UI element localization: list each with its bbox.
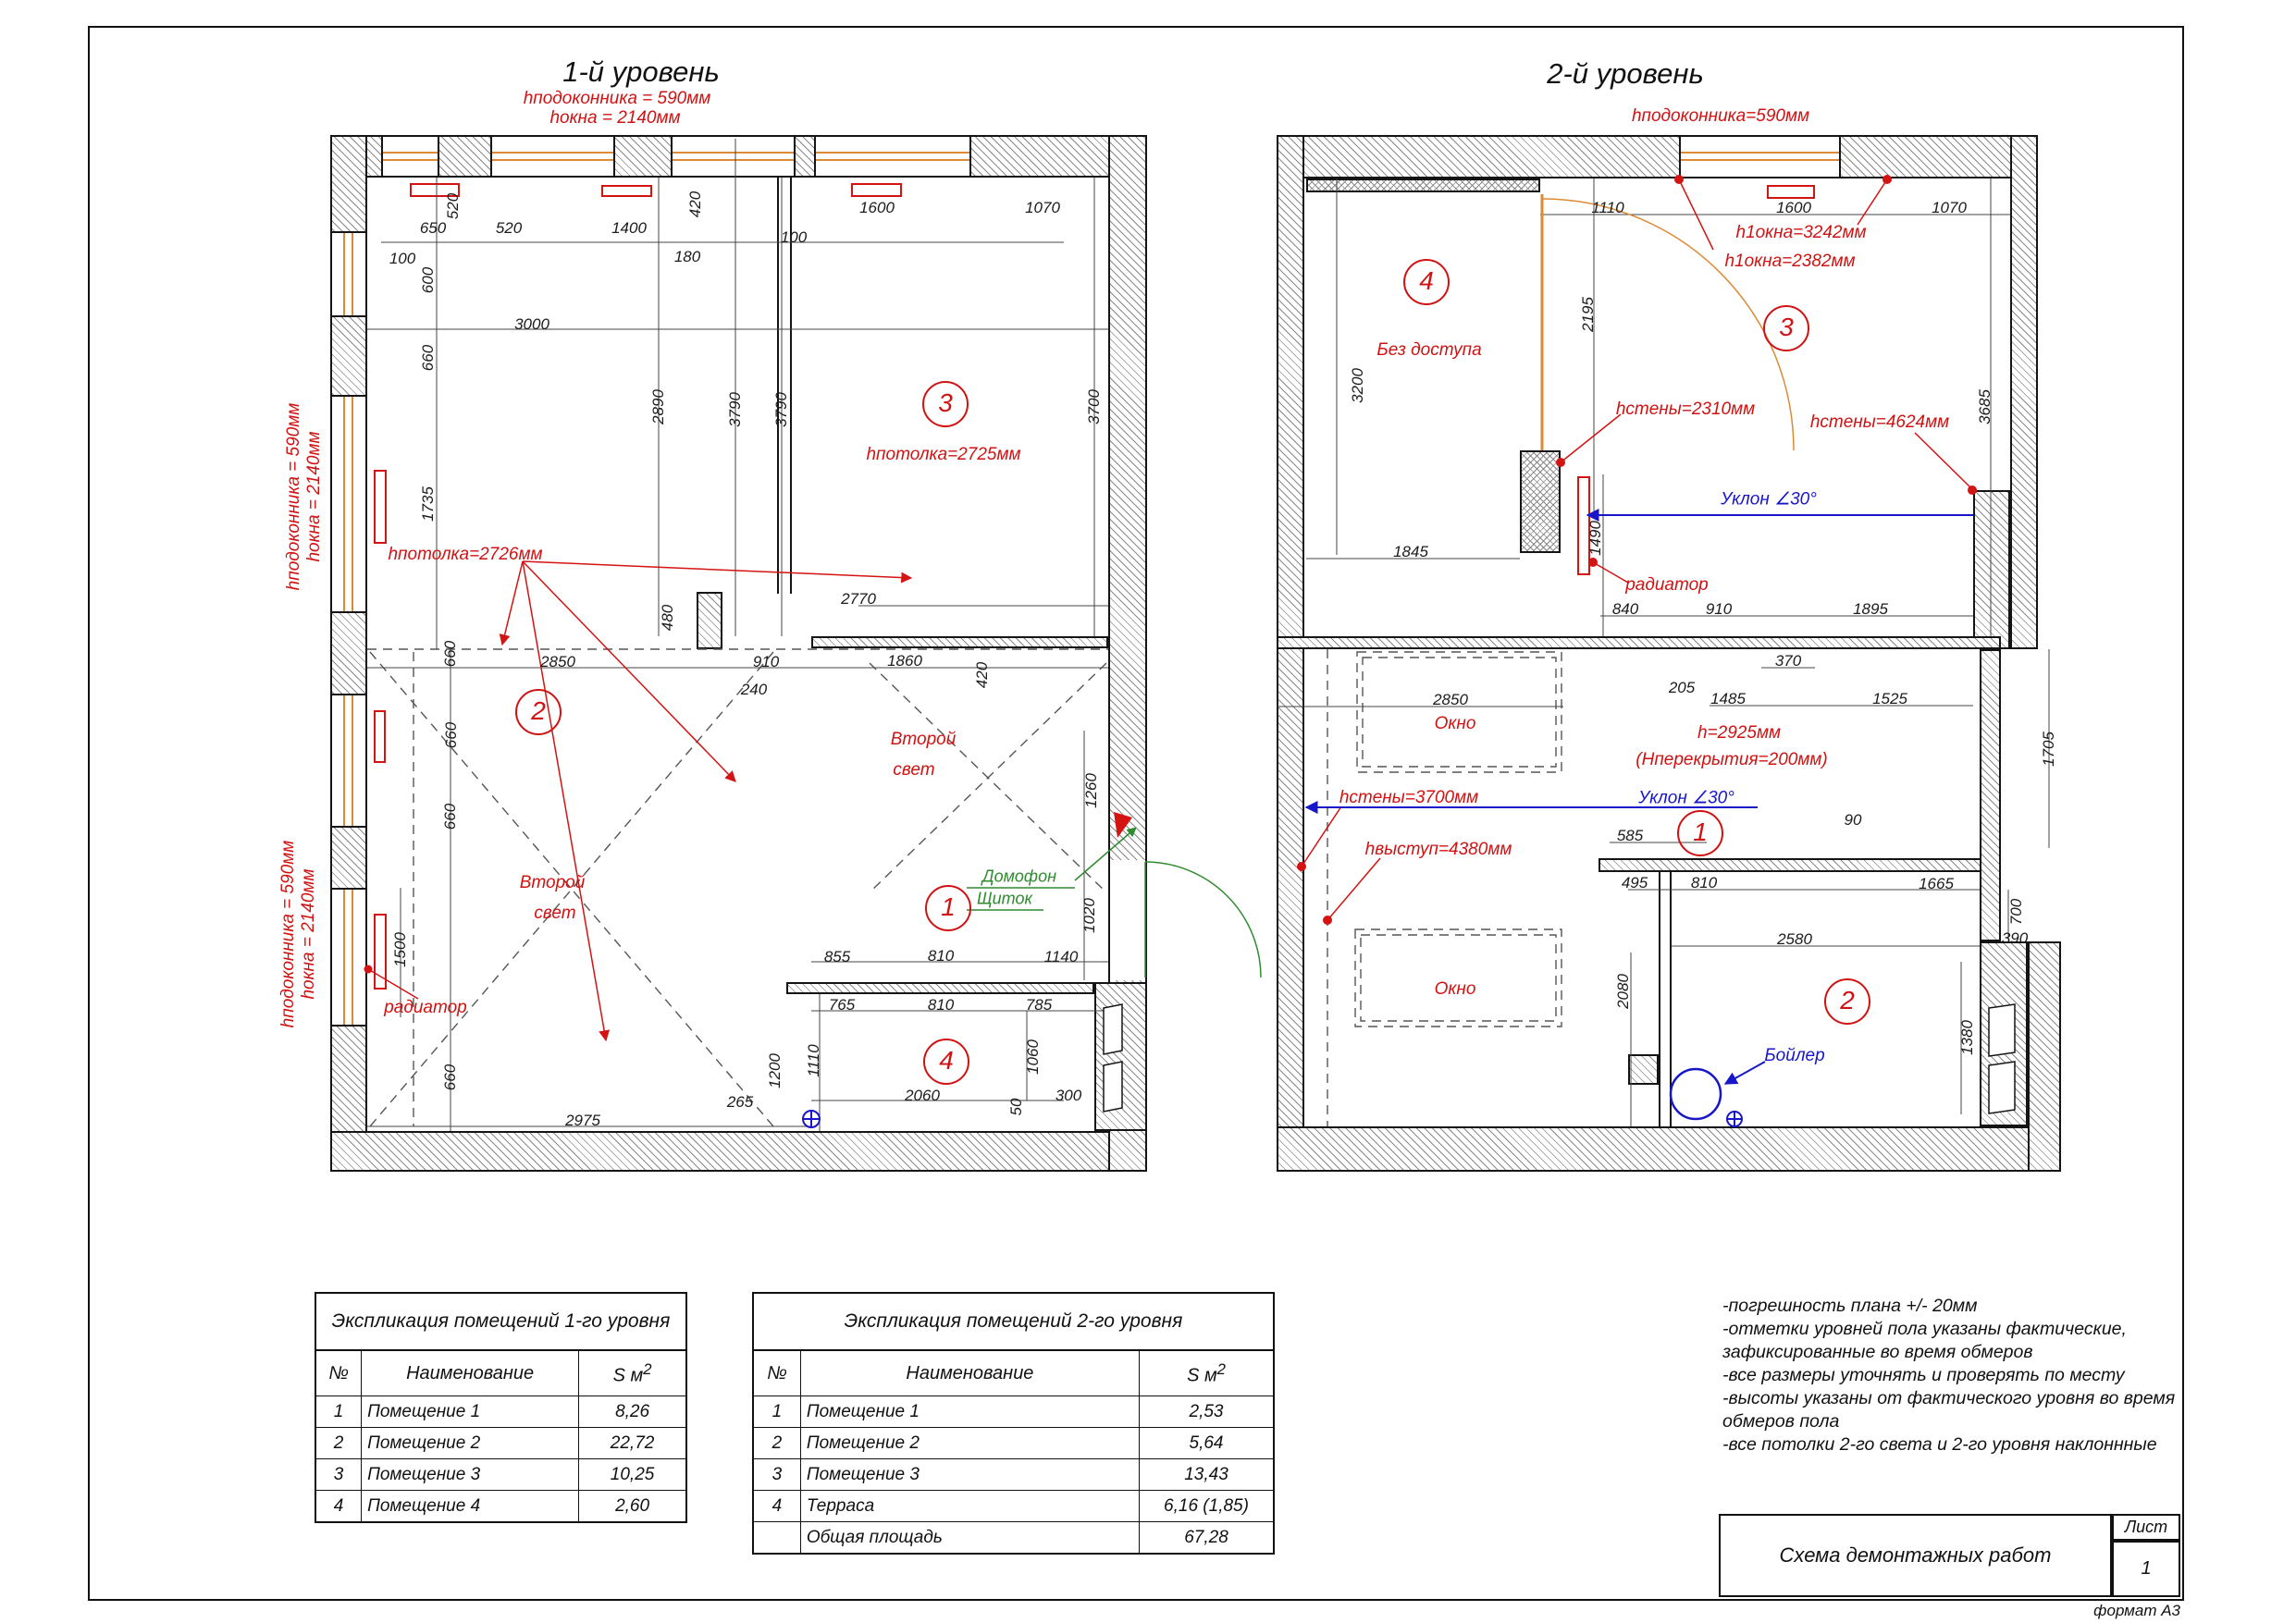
- level2-title: 2-й уровень: [1547, 57, 1704, 91]
- dimension-label: 1110: [805, 1044, 823, 1076]
- dimension-label: 2770: [841, 590, 876, 609]
- dimension-label: 1400: [611, 219, 647, 238]
- row-number: [753, 1522, 800, 1555]
- room-area: 13,43: [1140, 1459, 1274, 1491]
- table-title: Экспликация помещений 2-го уровня: [753, 1293, 1274, 1350]
- wall-segment: [1277, 135, 1304, 1172]
- room-area: 2,53: [1140, 1396, 1274, 1428]
- room-area: 8,26: [579, 1396, 686, 1428]
- dimension-label: 1490: [1586, 521, 1605, 556]
- dimension-label: 50: [1007, 1099, 1026, 1116]
- table-row: 3 Помещение 3 13,43: [753, 1459, 1274, 1491]
- explication-table-level1: Экспликация помещений 1-го уровня № Наим…: [315, 1292, 687, 1523]
- dimension-label: 1110: [1591, 199, 1623, 217]
- dimension-label: 1070: [1932, 199, 1967, 217]
- titleblock-sheet-number: 1: [2112, 1541, 2180, 1597]
- room-area: 10,25: [579, 1459, 686, 1491]
- vent-shaft: [1094, 982, 1147, 1131]
- demolition-mark: [601, 185, 652, 197]
- wall-pier: [1520, 450, 1561, 553]
- demolition-mark: [851, 183, 902, 197]
- dimension-label: 390: [2002, 929, 2028, 948]
- note-line: -высоты указаны от фактического уровня в…: [1722, 1387, 2181, 1433]
- window: [814, 137, 971, 176]
- annotation-label: hстены=2310мм: [1616, 400, 1755, 420]
- column-header: S м2: [579, 1350, 686, 1396]
- row-number: 4: [315, 1491, 362, 1523]
- dimension-label: 1525: [1872, 690, 1907, 708]
- row-number: 1: [753, 1396, 800, 1428]
- table-title: Экспликация помещений 1-го уровня: [315, 1293, 686, 1350]
- room-number: 3: [922, 381, 969, 427]
- demolition-mark: [1767, 185, 1815, 199]
- annotation-label: Окно: [1435, 979, 1476, 1000]
- dimension-label: 1060: [1024, 1039, 1043, 1075]
- annotation-label: hпотолка=2726мм: [388, 545, 542, 565]
- sheet-label: Лист: [2125, 1518, 2167, 1537]
- dimension-label: 660: [441, 641, 460, 667]
- annotation-label: hокна = 2140мм: [299, 868, 319, 999]
- vent-shaft: [1980, 941, 2028, 1126]
- room-area: 6,16 (1,85): [1140, 1491, 1274, 1522]
- dimension-label: 3700: [1085, 389, 1104, 424]
- column-header: №: [753, 1350, 800, 1396]
- dimension-label: 650: [420, 219, 446, 238]
- dimension-label: 3000: [514, 315, 549, 334]
- radiator-mark: [374, 914, 387, 990]
- dimension-label: 810: [928, 996, 954, 1014]
- table-row: 3 Помещение 3 10,25: [315, 1459, 686, 1491]
- dimension-label: 840: [1612, 600, 1638, 619]
- dimension-label: 520: [496, 219, 522, 238]
- row-number: 2: [315, 1428, 362, 1459]
- dimension-label: 1070: [1025, 199, 1060, 217]
- dimension-label: 765: [829, 996, 855, 1014]
- drawing-title: Схема демонтажных работ: [1780, 1543, 2052, 1568]
- annotation-label: радиатор: [384, 998, 467, 1018]
- dimension-label: 2195: [1579, 297, 1598, 332]
- partition-wall: [1659, 872, 1672, 1126]
- annotation-label: h1окна=3242мм: [1735, 223, 1866, 243]
- dimension-label: 480: [659, 605, 677, 631]
- annotation-label: свет: [893, 760, 934, 781]
- wall-segment: [2028, 941, 2061, 1172]
- annotation-label: hподоконника=590мм: [1632, 106, 1809, 127]
- room-name: Общая площадь: [800, 1522, 1139, 1555]
- window: [671, 137, 796, 176]
- wall-segment: [697, 592, 722, 649]
- room-number: 2: [1824, 978, 1870, 1025]
- column-header: Наименование: [800, 1350, 1139, 1396]
- annotation-label: Второй: [891, 730, 957, 750]
- wall-pier: [1628, 1054, 1659, 1085]
- note-line: -все потолки 2-го света и 2-го уровня на…: [1722, 1433, 2181, 1457]
- dimension-label: 2850: [1433, 691, 1468, 709]
- annotation-label: Бойлер: [1764, 1046, 1824, 1066]
- dimension-label: 1895: [1853, 600, 1888, 619]
- room-area: 2,60: [579, 1491, 686, 1523]
- dimension-label: 1705: [2040, 732, 2058, 767]
- dimension-label: 1845: [1393, 543, 1428, 561]
- room-number: 4: [923, 1039, 969, 1085]
- annotation-label: hпотолка=2725мм: [866, 445, 1020, 465]
- dimension-label: 2975: [565, 1112, 600, 1130]
- room-number: 1: [925, 885, 971, 931]
- annotation-label: Домофон: [982, 867, 1056, 887]
- annotation-label: hстены=4624мм: [1810, 412, 1949, 433]
- wall-segment: [1277, 135, 2038, 178]
- dimension-label: 90: [1845, 811, 1862, 830]
- wall-segment: [811, 636, 1108, 648]
- table-row: 2 Помещение 2 22,72: [315, 1428, 686, 1459]
- annotation-label: (Hперекрытия=200мм): [1636, 750, 1827, 770]
- wall-segment: [330, 1131, 1147, 1172]
- format-label: формат А3: [1995, 1602, 2180, 1620]
- dimension-label: 600: [419, 267, 438, 293]
- dimension-label: 2580: [1777, 930, 1812, 949]
- dimension-label: 240: [741, 681, 767, 699]
- titleblock-sheet-label: Лист: [2112, 1514, 2180, 1541]
- dimension-label: 910: [753, 653, 779, 671]
- dimension-label: 1735: [419, 486, 438, 522]
- annotation-label: h1окна=2382мм: [1724, 252, 1855, 272]
- row-number: 3: [315, 1459, 362, 1491]
- row-number: 1: [315, 1396, 362, 1428]
- room-area: 5,64: [1140, 1428, 1274, 1459]
- dimension-label: 785: [1026, 996, 1052, 1014]
- annotation-label: hокна = 2140мм: [549, 108, 680, 129]
- table-row: 2 Помещение 2 5,64: [753, 1428, 1274, 1459]
- room-name: Помещение 2: [362, 1428, 579, 1459]
- dimension-label: 2060: [905, 1087, 940, 1105]
- dimension-label: 1260: [1082, 773, 1101, 808]
- wall-segment: [1973, 490, 2010, 649]
- annotation-label: hподоконника = 590мм: [278, 841, 299, 1028]
- dimension-label: 1380: [1958, 1020, 1977, 1055]
- table-row: 1 Помещение 1 2,53: [753, 1396, 1274, 1428]
- dimension-label: 1860: [887, 652, 922, 670]
- dimension-label: 3790: [726, 392, 745, 427]
- annotation-label: свет: [534, 904, 575, 924]
- dimension-label: 100: [389, 250, 415, 268]
- dimension-label: 100: [781, 228, 807, 247]
- level1-title: 1-й уровень: [562, 55, 720, 89]
- row-number: 4: [753, 1491, 800, 1522]
- note-line: -отметки уровней пола указаны фактически…: [1722, 1318, 2181, 1364]
- sheet-number: 1: [2141, 1558, 2151, 1580]
- dimension-label: 1020: [1080, 898, 1099, 933]
- wall-segment: [1599, 858, 2001, 872]
- annotation-label: h=2925мм: [1697, 723, 1781, 744]
- dimension-label: 1600: [859, 199, 895, 217]
- dimension-label: 370: [1775, 652, 1801, 670]
- dimension-label: 1200: [766, 1053, 784, 1088]
- column-header: №: [315, 1350, 362, 1396]
- dimension-label: 810: [928, 947, 954, 965]
- annotation-label: Окно: [1435, 714, 1476, 734]
- wall-segment: [2010, 135, 2038, 649]
- room-name: Помещение 3: [362, 1459, 579, 1491]
- dimension-label: 3200: [1349, 368, 1367, 403]
- annotation-label: Второй: [520, 873, 586, 893]
- column-header: Наименование: [362, 1350, 579, 1396]
- dimension-label: 1140: [1044, 948, 1079, 966]
- annotation-label: hстены=3700мм: [1339, 788, 1478, 808]
- dimension-label: 660: [419, 345, 438, 371]
- window: [381, 137, 439, 176]
- dimension-label: 3685: [1976, 389, 1994, 424]
- annotation-label: hокна = 2140мм: [304, 431, 325, 561]
- dimension-label: 1665: [1919, 875, 1954, 893]
- wall-segment: [786, 982, 1094, 994]
- drawing-sheet: 1-й уровень 2-й уровень 6505205201400420…: [0, 0, 2296, 1623]
- dimension-label: 585: [1617, 827, 1643, 845]
- dimension-label: 3790: [772, 392, 791, 427]
- dimension-label: 2080: [1614, 974, 1633, 1009]
- row-number: 3: [753, 1459, 800, 1491]
- dimension-label: 855: [824, 948, 850, 966]
- annotation-label: Уклон ∠30°: [1721, 489, 1817, 510]
- window: [490, 137, 615, 176]
- annotation-label: hвыступ=4380мм: [1365, 840, 1512, 860]
- table-row: Общая площадь 67,28: [753, 1522, 1274, 1555]
- table-row: 4 Терраса 6,16 (1,85): [753, 1491, 1274, 1522]
- dimension-label: 700: [2007, 899, 2026, 925]
- annotation-label: радиатор: [1625, 575, 1709, 596]
- window: [332, 888, 365, 1027]
- window: [332, 231, 365, 317]
- wall-segment: [1277, 1126, 2061, 1172]
- annotation-label: Уклон ∠30°: [1638, 788, 1734, 809]
- dimension-label: 2850: [540, 653, 575, 671]
- room-number: 3: [1763, 305, 1809, 351]
- wall-segment: [1980, 649, 2001, 941]
- dimension-label: 660: [442, 722, 461, 748]
- dimension-label: 910: [1706, 600, 1732, 619]
- radiator-mark: [374, 710, 386, 763]
- note-line: -погрешность плана +/- 20мм: [1722, 1295, 2181, 1318]
- dimension-label: 660: [441, 804, 460, 830]
- annotation-label: Щиток: [977, 890, 1032, 909]
- dimension-label: 265: [727, 1093, 753, 1112]
- table-row: 1 Помещение 1 8,26: [315, 1396, 686, 1428]
- room-name: Помещение 3: [800, 1459, 1139, 1491]
- dimension-label: 205: [1669, 679, 1695, 697]
- dimension-label: 660: [441, 1064, 460, 1090]
- room-number: 2: [515, 689, 562, 735]
- annotation-label: Без доступа: [1376, 340, 1481, 361]
- window: [332, 694, 365, 828]
- room-name: Помещение 1: [800, 1396, 1139, 1428]
- dimension-label: 2890: [649, 389, 668, 424]
- column-header: S м2: [1140, 1350, 1274, 1396]
- titleblock-name: Схема демонтажных работ: [1719, 1514, 2112, 1597]
- room-name: Помещение 1: [362, 1396, 579, 1428]
- room-name: Помещение 2: [800, 1428, 1139, 1459]
- dimension-label: 420: [686, 191, 705, 217]
- dimension-label: 300: [1055, 1087, 1081, 1105]
- wall-segment: [1277, 636, 2001, 649]
- door-opening: [1110, 860, 1145, 980]
- dimension-label: 1500: [391, 932, 410, 967]
- room-area: 22,72: [579, 1428, 686, 1459]
- general-notes: -погрешность плана +/- 20мм-отметки уров…: [1722, 1295, 2181, 1457]
- dimension-label: 810: [1691, 874, 1717, 892]
- dimension-label: 495: [1622, 874, 1648, 892]
- table-row: 4 Помещение 4 2,60: [315, 1491, 686, 1523]
- note-line: -все размеры уточнять и проверять по мес…: [1722, 1364, 2181, 1387]
- dimension-label: 1600: [1776, 199, 1811, 217]
- room-name: Помещение 4: [362, 1491, 579, 1523]
- room-number: 4: [1403, 259, 1450, 305]
- dimension-label: 420: [973, 662, 992, 688]
- dimension-label: 520: [444, 193, 463, 219]
- annotation-label: hподоконника = 590мм: [524, 89, 711, 109]
- dimension-label: 180: [674, 248, 700, 266]
- dimension-label: 1485: [1710, 690, 1746, 708]
- window: [1679, 137, 1841, 177]
- window: [332, 395, 365, 613]
- row-number: 2: [753, 1428, 800, 1459]
- explication-table-level2: Экспликация помещений 2-го уровня № Наим…: [752, 1292, 1275, 1555]
- wall-segment: [1306, 178, 1540, 192]
- radiator-mark: [374, 470, 387, 544]
- room-name: Терраса: [800, 1491, 1139, 1522]
- room-area: 67,28: [1140, 1522, 1274, 1555]
- annotation-label: hподоконника = 590мм: [284, 403, 304, 591]
- room-number: 1: [1677, 810, 1723, 856]
